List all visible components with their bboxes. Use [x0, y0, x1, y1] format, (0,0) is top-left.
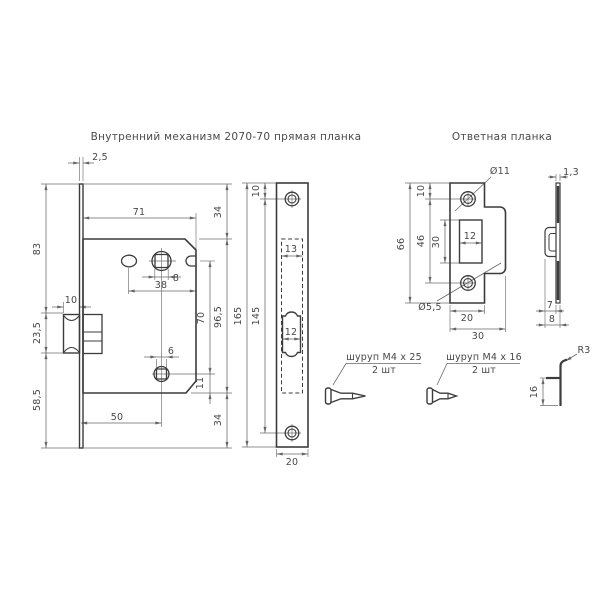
screw-long: шуруп М4 x 25 2 шт: [326, 352, 422, 404]
side-plate-fill-bottom: [557, 261, 559, 300]
strike-title: Ответная планка: [452, 131, 552, 143]
handle-oval-hole: [122, 255, 137, 267]
screw-long-label: шуруп М4 x 25: [346, 352, 422, 363]
dim-fix-square: 6: [168, 346, 174, 357]
side-plate-fill-top: [557, 186, 559, 223]
screw-long-leader: [333, 364, 346, 386]
dim-fp-latch-width: 12: [285, 327, 298, 338]
dim-hole-spacing: 38: [155, 280, 168, 291]
drawing-canvas: Внутренний механизм 2070-70 прямая планк…: [0, 0, 600, 600]
lock-body-outline: [83, 239, 196, 393]
dim-fp-hole-spacing: 145: [251, 307, 262, 326]
dim-strike-hole-spacing: 46: [416, 235, 427, 248]
dim-detail-radius: R3: [577, 345, 590, 356]
detail-lip-profile: [561, 360, 568, 407]
strike-side-view: 1,3 7 8: [536, 167, 579, 328]
screw-short-head: [427, 388, 433, 404]
dim-latch-section: 23,5: [32, 322, 43, 344]
side-bent-lip: [545, 228, 556, 257]
mechanism-view: 2,5 83 23,5 58,5 10 71 34 8 38 70 96,5 6…: [32, 152, 232, 448]
dim-faceplate-thickness: 2,5: [92, 152, 108, 163]
technical-drawing: Внутренний механизм 2070-70 прямая планк…: [0, 0, 600, 600]
dim-body-height: 96,5: [213, 306, 224, 328]
dim-fp-total-height: 165: [233, 307, 244, 326]
dim-fp-cutout-width: 13: [285, 244, 298, 255]
dim-lower-section: 58,5: [32, 389, 43, 411]
dim-strike-hole-dia-small: Ø5,5: [418, 302, 441, 313]
dim-latch-depth: 10: [65, 295, 78, 306]
dim-fp-plate-width: 20: [286, 457, 299, 468]
dim-strike-plate-width: 20: [461, 313, 474, 324]
dim-strike-total-height: 66: [396, 238, 407, 251]
dim-strike-total-width: 30: [472, 331, 485, 342]
screw-short: шуруп М4 x 16 2 шт: [427, 352, 522, 404]
dim-fp-hole-offset: 10: [251, 185, 262, 198]
dim-strike-slot-width: 12: [464, 231, 477, 242]
latch-tail-block: [83, 315, 102, 354]
dim-top-offset: 34: [213, 206, 224, 219]
screw-short-body: [433, 390, 457, 403]
dim-spindle-to-fix: 70: [196, 312, 207, 325]
screw-short-leader: [437, 364, 447, 386]
dim-strike-hole-offset: 10: [416, 185, 427, 198]
dim-upper-section: 83: [32, 243, 43, 256]
screw-long-body: [331, 390, 366, 403]
dim-spindle-square: 8: [173, 273, 179, 284]
mechanism-title: Внутренний механизм 2070-70 прямая планк…: [91, 131, 362, 143]
dim-detail-lip-height: 16: [529, 386, 540, 399]
strike-plate-view: Ø11 10 66 46 30 12 Ø5,5 20 30: [396, 166, 510, 342]
dim-fix-to-bottom: 11: [195, 377, 206, 390]
edge-notch: [186, 256, 196, 266]
side-bent-lip-inner: [549, 234, 556, 252]
dim-side-thickness: 1,3: [563, 167, 579, 178]
dim-bottom-offset: 34: [213, 414, 224, 427]
screw-long-qty: 2 шт: [372, 365, 396, 376]
latch-bevel-arcs: [64, 316, 79, 352]
lip-detail-view: R3 16: [529, 345, 591, 406]
dim-backset: 50: [111, 412, 124, 423]
dim-body-width: 71: [133, 207, 146, 218]
dim-side-lip-total: 8: [549, 314, 555, 325]
faceplate-view: 10 165 145 13 12 20: [233, 183, 308, 468]
dim-side-lip-depth: 7: [547, 300, 553, 311]
screw-short-qty: 2 шт: [472, 365, 496, 376]
dim-strike-hole-dia-large: Ø11: [490, 166, 510, 177]
dim-strike-slot-height: 30: [431, 236, 442, 249]
screw-short-label: шуруп М4 x 16: [446, 352, 522, 363]
screw-long-head: [326, 388, 332, 404]
